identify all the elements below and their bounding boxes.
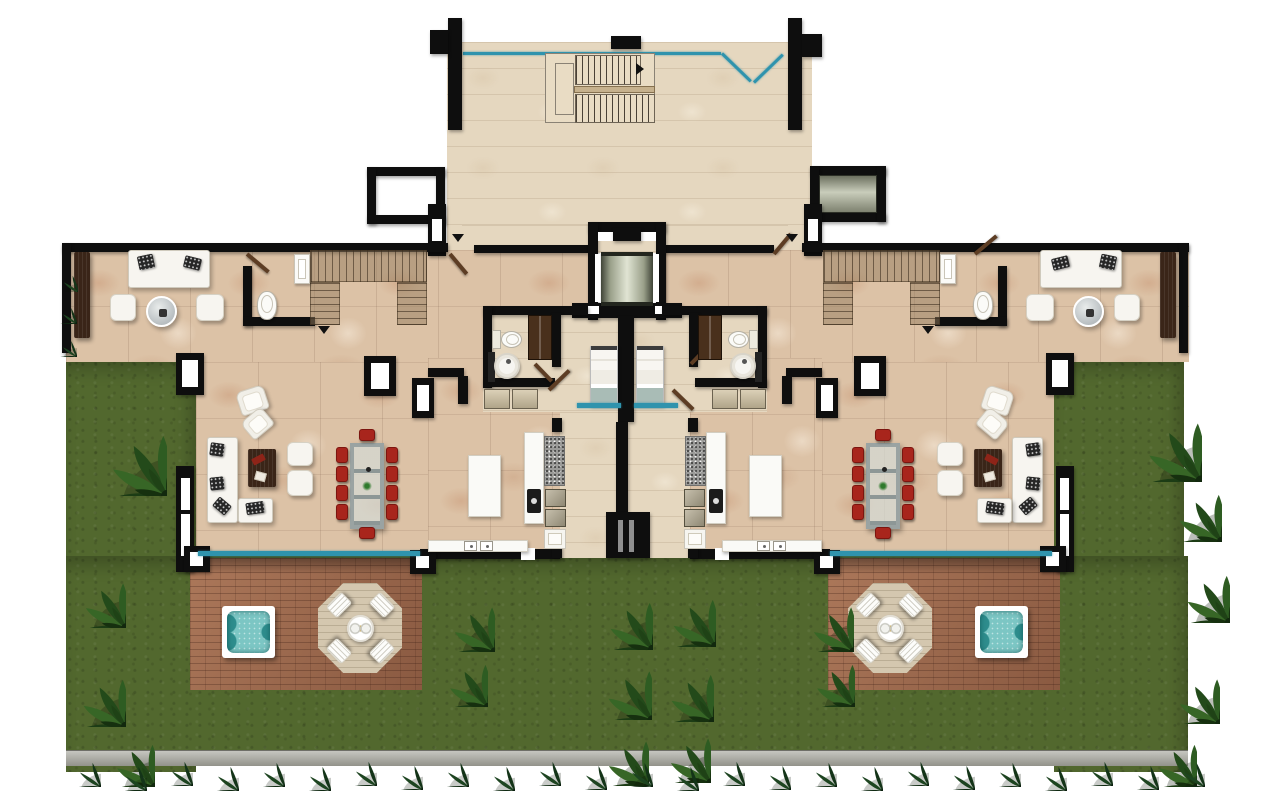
bedroom-closet-right xyxy=(698,315,722,360)
kitchen-lowcab-right xyxy=(684,529,706,549)
corner-post-left-b-inner xyxy=(416,556,429,568)
kitchen-bottom-counter-right xyxy=(722,540,822,552)
unit-stair-left-arrow xyxy=(318,326,330,334)
powder-wall-left-h xyxy=(243,317,315,326)
entry-cabinet-left xyxy=(74,252,90,338)
lounge-ottoman-left-a xyxy=(110,294,136,321)
post-f-left-inner xyxy=(417,385,429,411)
bedroom-slider-right xyxy=(634,403,678,408)
terrace-stub-ra xyxy=(688,418,698,432)
kitchen-granite-right xyxy=(685,436,706,486)
dining-chair-l9 xyxy=(359,429,375,441)
lobby-wall-top-center xyxy=(611,36,641,49)
lobby-doorpost-left-slit xyxy=(432,219,442,241)
unit-stair-left-colA xyxy=(310,282,340,325)
gazebo-table-left xyxy=(347,615,374,642)
kitchen-appliance-left-b xyxy=(545,509,566,527)
lobby-niche-top xyxy=(367,167,445,176)
unit-stair-left-colB xyxy=(397,282,427,325)
kitchen-appliance-left-a xyxy=(545,489,566,507)
plunge-pool-right xyxy=(975,606,1028,658)
bath-sink-right xyxy=(730,353,756,379)
bed-left xyxy=(590,346,618,406)
lsofa-left-pillow-d xyxy=(245,501,264,515)
kitchen-sink-left-b xyxy=(480,541,493,551)
unit-edge-wall-right xyxy=(1179,243,1188,353)
corner-post-right-b-inner xyxy=(820,556,833,568)
bedroom-slider-left xyxy=(577,403,621,408)
lsofa-right-pillow-b xyxy=(1025,476,1040,490)
terrace-stub-la xyxy=(552,418,562,432)
dining-chair-l6 xyxy=(386,466,398,482)
dining-chair-l2 xyxy=(336,466,348,482)
powder-toilet-left xyxy=(257,291,277,320)
bath-bed-stub-left xyxy=(552,313,561,367)
kitchen-cooktop-right xyxy=(709,489,723,513)
bath-toilet-tank-left xyxy=(492,330,501,349)
party-wall-base xyxy=(606,512,650,558)
unit-stair-left-top xyxy=(310,250,427,282)
central-top-wall-left xyxy=(483,306,588,315)
bath-toilet-bowl-right xyxy=(728,331,749,348)
lounge-ottoman-right-b xyxy=(1026,294,1054,321)
dining-plant-right xyxy=(878,481,888,491)
entry-cabinet-right xyxy=(1160,252,1176,338)
lobby-stair-arrow xyxy=(636,63,644,75)
corridor-wall-left xyxy=(474,245,588,253)
kitchen-sink-right-b xyxy=(773,541,786,551)
powder-toilet-right xyxy=(973,291,993,320)
bath-toilet-bowl-left xyxy=(501,331,522,348)
unit-stair-right-colB xyxy=(910,282,940,325)
dining-chair-r9 xyxy=(875,429,891,441)
living-ottoman-left-b xyxy=(287,470,313,496)
kitchen-island-right xyxy=(749,455,782,517)
hall-closet-right-b xyxy=(740,389,766,409)
lsofa-right-pillow-d xyxy=(985,501,1004,515)
plunge-pool-left xyxy=(222,606,275,658)
dining-chair-r2 xyxy=(852,466,864,482)
entry-arrow-right xyxy=(786,234,798,242)
post-a-right-inner xyxy=(1052,360,1068,387)
dining-chair-r6 xyxy=(902,466,914,482)
lsofa-left-pillow-b xyxy=(209,476,224,490)
lounge-ottoman-right-a xyxy=(1114,294,1140,321)
dining-chair-r1 xyxy=(852,447,864,463)
lounge-table-right xyxy=(1073,296,1104,327)
side-wall-left-slot-a xyxy=(181,478,190,510)
elevator-call-wall xyxy=(613,228,641,241)
lobby-wall-left-stub xyxy=(430,30,448,54)
post-f-right-inner xyxy=(821,385,833,411)
post-e-left-inner xyxy=(371,363,389,389)
lobby-planter-top xyxy=(810,166,886,175)
side-wall-right-slot-a xyxy=(1060,478,1069,510)
bed-right xyxy=(636,346,664,406)
kitchen-wall-right-b xyxy=(782,376,792,404)
lobby-wall-right xyxy=(788,18,802,130)
lsofa-right-pillow-a xyxy=(1025,442,1041,457)
lobby-wall-left xyxy=(448,18,462,130)
garden-curb xyxy=(66,750,1188,766)
floor-plan-canvas xyxy=(0,0,1280,800)
party-wall-mid xyxy=(616,422,628,514)
kitchen-sink-left-a xyxy=(464,541,477,551)
powder-console-right xyxy=(940,254,956,284)
lounge-sofa-right-pillow-b xyxy=(1099,253,1118,270)
lobby-doorpost-right-slit xyxy=(808,219,818,241)
corridor-wall-right xyxy=(662,245,774,253)
elevator-car-slit-left xyxy=(595,254,600,302)
kitchen-cooktop-left xyxy=(527,489,541,513)
central-top-wall-right xyxy=(662,306,767,315)
dining-chair-l5 xyxy=(386,447,398,463)
living-slider-right xyxy=(830,551,1052,556)
bedroom-closet-left xyxy=(528,315,552,360)
dining-chair-r5 xyxy=(902,447,914,463)
kitchen-appliance-right-b xyxy=(684,509,705,527)
powder-wall-right-h xyxy=(935,317,1007,326)
lsofa-left-pillow-a xyxy=(209,442,225,457)
kitchen-island-left xyxy=(468,455,501,517)
unit-edge-wall-left xyxy=(62,243,71,353)
kitchen-bottom-counter-left xyxy=(428,540,528,552)
dining-plant-left xyxy=(362,481,372,491)
lobby-stair-lower-treads xyxy=(575,94,655,123)
kitchen-lowcab-left xyxy=(544,529,566,549)
lobby-planter-right xyxy=(877,166,886,222)
dining-chair-r10 xyxy=(875,527,891,539)
dining-chair-r4 xyxy=(852,504,864,520)
lobby-stair-rail xyxy=(574,86,655,93)
dining-chair-l7 xyxy=(386,485,398,501)
entry-arrow-left xyxy=(452,234,464,242)
powder-console-left xyxy=(294,254,310,284)
post-e-right-inner xyxy=(861,363,879,389)
bath-counter-right xyxy=(755,352,762,382)
party-wall-base-slit-a xyxy=(618,520,623,552)
dining-chair-l4 xyxy=(336,504,348,520)
party-wall-base-slit-b xyxy=(629,520,634,552)
lobby-planter-metal xyxy=(819,175,877,213)
post-a-left-inner xyxy=(182,360,198,387)
dining-chair-r3 xyxy=(852,485,864,501)
hall-closet-right-a xyxy=(712,389,738,409)
kitchen-wall-left-b xyxy=(458,376,468,404)
bath-toilet-tank-right xyxy=(749,330,758,349)
hall-closet-left-a xyxy=(484,389,510,409)
kitchen-appliance-right-a xyxy=(684,489,705,507)
hall-closet-left-b xyxy=(512,389,538,409)
unit-stair-right-top xyxy=(823,250,940,282)
living-ottoman-right-a xyxy=(937,442,963,466)
elevator-car-slit-right xyxy=(654,254,659,302)
living-slider-left xyxy=(198,551,420,556)
living-ottoman-right-b xyxy=(937,470,963,496)
living-ottoman-left-a xyxy=(287,442,313,466)
unit-stair-right-colA xyxy=(823,282,853,325)
elevator-car xyxy=(601,252,653,306)
kitchen-granite-left xyxy=(544,436,565,486)
dining-chair-l8 xyxy=(386,504,398,520)
dining-chair-l1 xyxy=(336,447,348,463)
bath-sink-left xyxy=(494,353,520,379)
lobby-wall-right-stub xyxy=(802,34,822,57)
lounge-ottoman-left-b xyxy=(196,294,224,321)
gazebo-table-right xyxy=(877,615,904,642)
dining-chair-r7 xyxy=(902,485,914,501)
dining-chair-r8 xyxy=(902,504,914,520)
dining-chair-l3 xyxy=(336,485,348,501)
unit-stair-right-arrow xyxy=(922,326,934,334)
lobby-stair-upper-treads xyxy=(575,55,641,85)
dining-chair-l10 xyxy=(359,527,375,539)
kitchen-sink-right-a xyxy=(757,541,770,551)
lounge-table-left xyxy=(146,296,177,327)
